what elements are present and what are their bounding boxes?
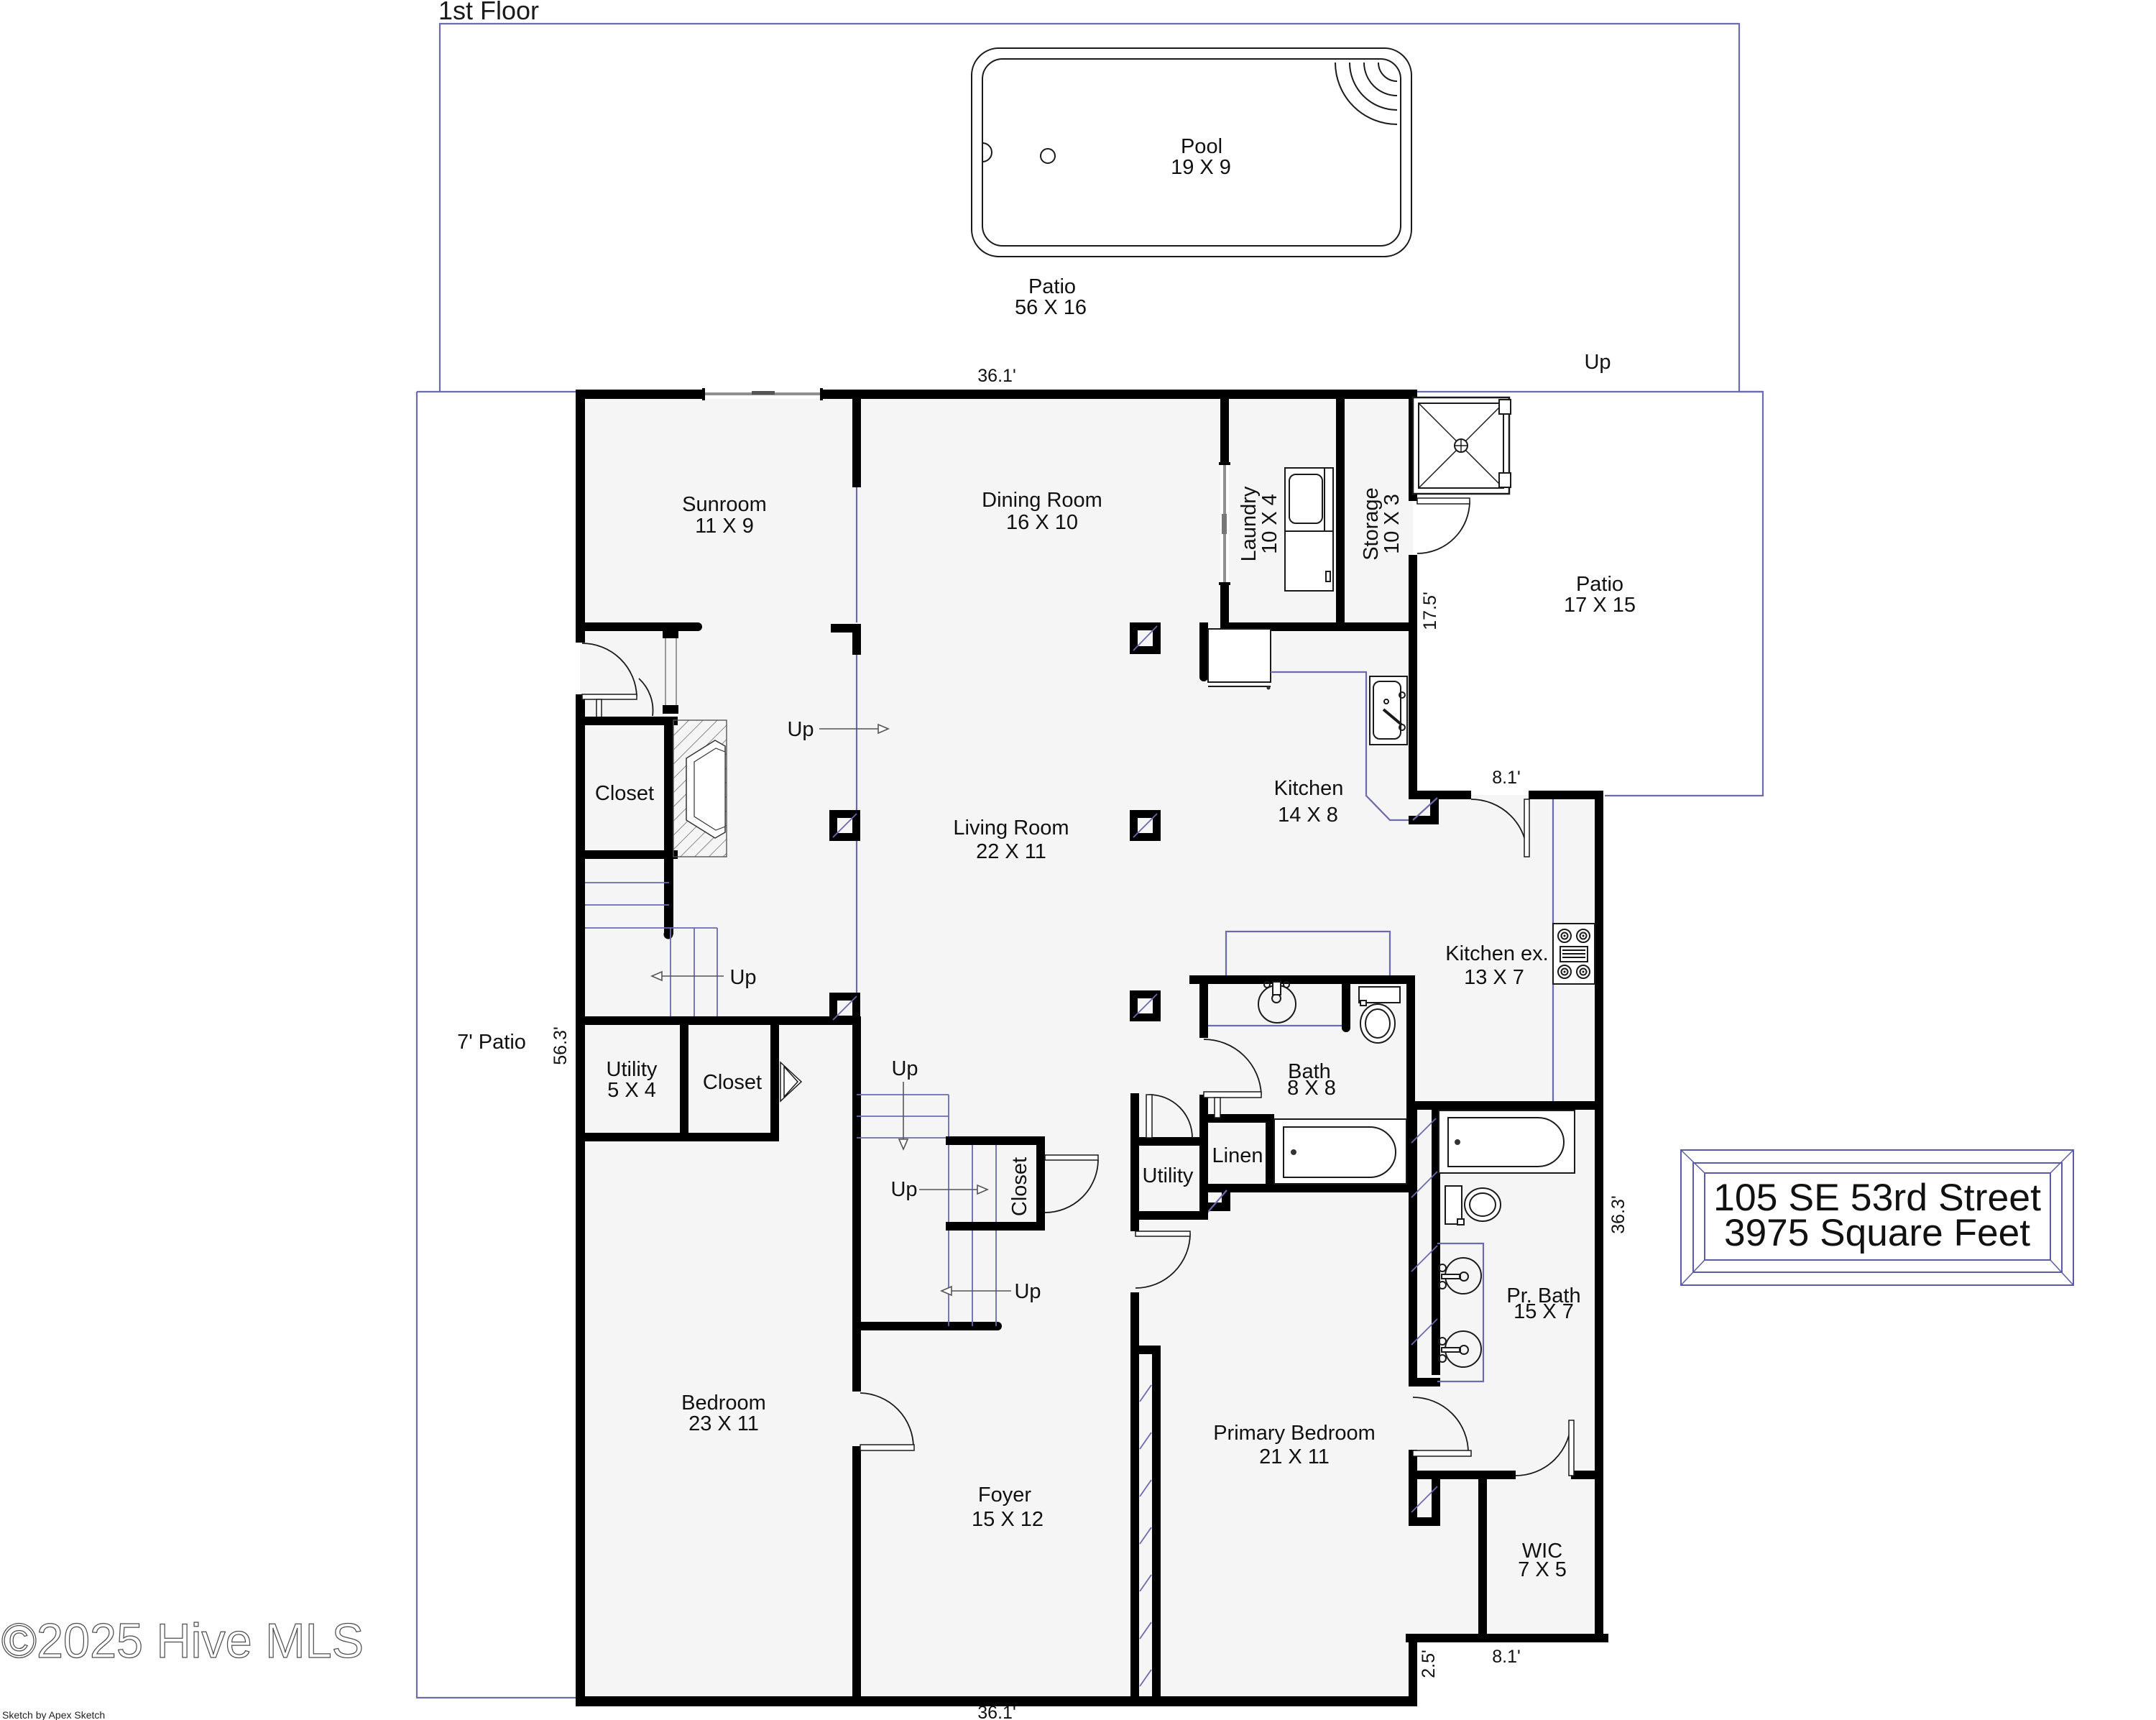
svg-text:11 X 9: 11 X 9 [695,515,754,538]
svg-text:Pool: Pool [1181,135,1222,158]
svg-text:7 X 5: 7 X 5 [1518,1558,1567,1581]
svg-text:21 X 11: 21 X 11 [1259,1445,1330,1468]
svg-text:13 X 7: 13 X 7 [1464,966,1524,989]
svg-text:3975 Square Feet: 3975 Square Feet [1724,1212,2030,1254]
svg-text:Storage: Storage [1360,487,1383,561]
svg-text:Closet: Closet [1008,1157,1031,1216]
svg-text:Patio: Patio [1576,573,1623,596]
svg-text:Primary Bedroom: Primary Bedroom [1213,1422,1376,1445]
svg-text:14 X 8: 14 X 8 [1278,804,1338,827]
svg-text:Sunroom: Sunroom [682,493,767,516]
svg-text:10 X 3: 10 X 3 [1381,494,1404,554]
svg-text:36.1': 36.1' [977,366,1015,386]
svg-text:8 X 8: 8 X 8 [1287,1077,1336,1100]
svg-text:Up: Up [729,966,756,989]
svg-text:Living Room: Living Room [953,817,1069,840]
svg-text:22 X 11: 22 X 11 [976,840,1046,863]
svg-text:Linen: Linen [1212,1144,1263,1167]
svg-text:7' Patio: 7' Patio [457,1031,526,1054]
svg-text:Dining Room: Dining Room [982,489,1102,512]
svg-text:15 X 7: 15 X 7 [1514,1300,1574,1323]
svg-text:Patio: Patio [1028,275,1076,298]
svg-text:5 X 4: 5 X 4 [607,1079,656,1102]
svg-text:Up: Up [787,718,814,741]
svg-text:Closet: Closet [703,1071,762,1094]
svg-text:Kitchen: Kitchen [1274,777,1344,800]
svg-text:Laundry: Laundry [1238,486,1261,561]
svg-text:16 X 10: 16 X 10 [1006,511,1078,534]
svg-text:15 X 12: 15 X 12 [972,1508,1044,1531]
svg-text:36.1': 36.1' [977,1703,1015,1720]
svg-text:19 X 9: 19 X 9 [1171,156,1231,179]
svg-text:Kitchen ex.: Kitchen ex. [1445,942,1548,965]
svg-text:36.3': 36.3' [1608,1195,1628,1233]
svg-text:Utility: Utility [607,1058,658,1081]
svg-text:Up: Up [1584,351,1611,374]
svg-text:8.1': 8.1' [1492,768,1521,788]
svg-text:2.5': 2.5' [1419,1650,1439,1678]
svg-text:17 X 15: 17 X 15 [1564,594,1636,617]
svg-text:17.5': 17.5' [1420,592,1440,630]
svg-text:Up: Up [890,1178,917,1201]
svg-text:©2025 Hive MLS: ©2025 Hive MLS [1,1614,364,1668]
svg-text:Up: Up [1014,1280,1041,1303]
svg-text:1st Floor: 1st Floor [438,0,539,25]
svg-text:8.1': 8.1' [1492,1647,1521,1667]
svg-text:56 X 16: 56 X 16 [1015,296,1087,319]
svg-text:Closet: Closet [595,782,654,805]
svg-text:Utility: Utility [1143,1164,1194,1187]
svg-text:23 X 11: 23 X 11 [688,1412,759,1435]
svg-text:10 X 4: 10 X 4 [1258,494,1281,554]
svg-text:Sketch by Apex Sketch: Sketch by Apex Sketch [2,1709,105,1720]
svg-text:Foyer: Foyer [978,1484,1031,1507]
svg-text:56.3': 56.3' [550,1026,571,1064]
svg-text:Up: Up [891,1057,918,1080]
svg-text:Bedroom: Bedroom [681,1392,766,1415]
